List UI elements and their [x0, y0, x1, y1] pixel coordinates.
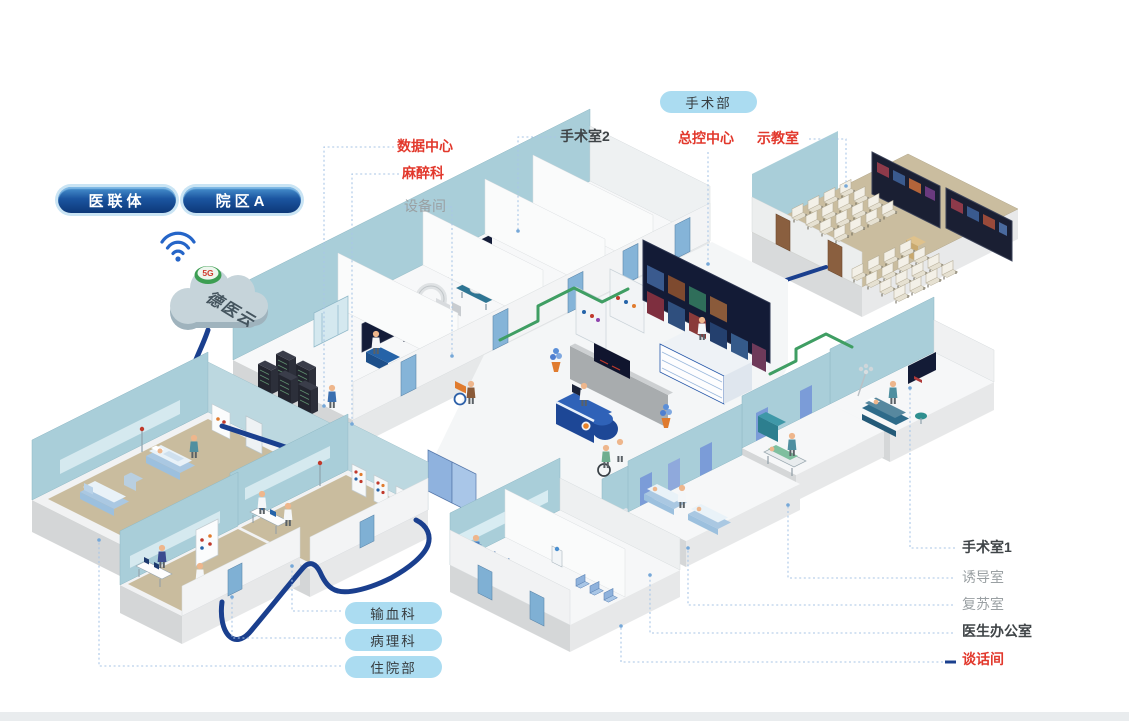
- hospital-isometric-diagram: OR2 OR3: [0, 0, 1129, 721]
- footer-strip: [0, 712, 1129, 721]
- wifi-dot: [175, 256, 180, 261]
- pill-surgery-department[interactable]: 手术部: [660, 91, 757, 113]
- label-demo-room: 示教室: [757, 131, 799, 145]
- label-equipment-room: 设备间: [404, 199, 446, 213]
- label-anesthesiology: 麻醉科: [402, 166, 444, 180]
- pill-pathology[interactable]: 病理科: [345, 629, 442, 651]
- talk-room-dash: [945, 661, 956, 664]
- label-data-center: 数据中心: [397, 139, 453, 153]
- label-or-room-2: 手术室2: [560, 129, 610, 143]
- label-doctor-office: 医生办公室: [962, 624, 1032, 638]
- demo-classroom-block: [752, 131, 1018, 317]
- pill-blood-transfusion[interactable]: 输血科: [345, 602, 442, 624]
- pill-campus-a[interactable]: 院区A: [183, 187, 301, 213]
- cloud-5g-badge: 5G: [202, 268, 214, 278]
- pill-medical-alliance[interactable]: 医联体: [58, 187, 176, 213]
- cloud-shape: 德医云 5G: [170, 266, 268, 331]
- label-or-room-1: 手术室1: [962, 540, 1012, 554]
- label-recovery-room: 复苏室: [962, 597, 1004, 611]
- pill-inpatient[interactable]: 住院部: [345, 656, 442, 678]
- wifi-icon: [162, 233, 194, 253]
- label-master-control: 总控中心: [678, 131, 734, 145]
- label-talk-room: 谈话间: [962, 652, 1004, 666]
- isometric-illustration: OR2 OR3: [0, 0, 1129, 721]
- label-induction-room: 诱导室: [962, 570, 1004, 584]
